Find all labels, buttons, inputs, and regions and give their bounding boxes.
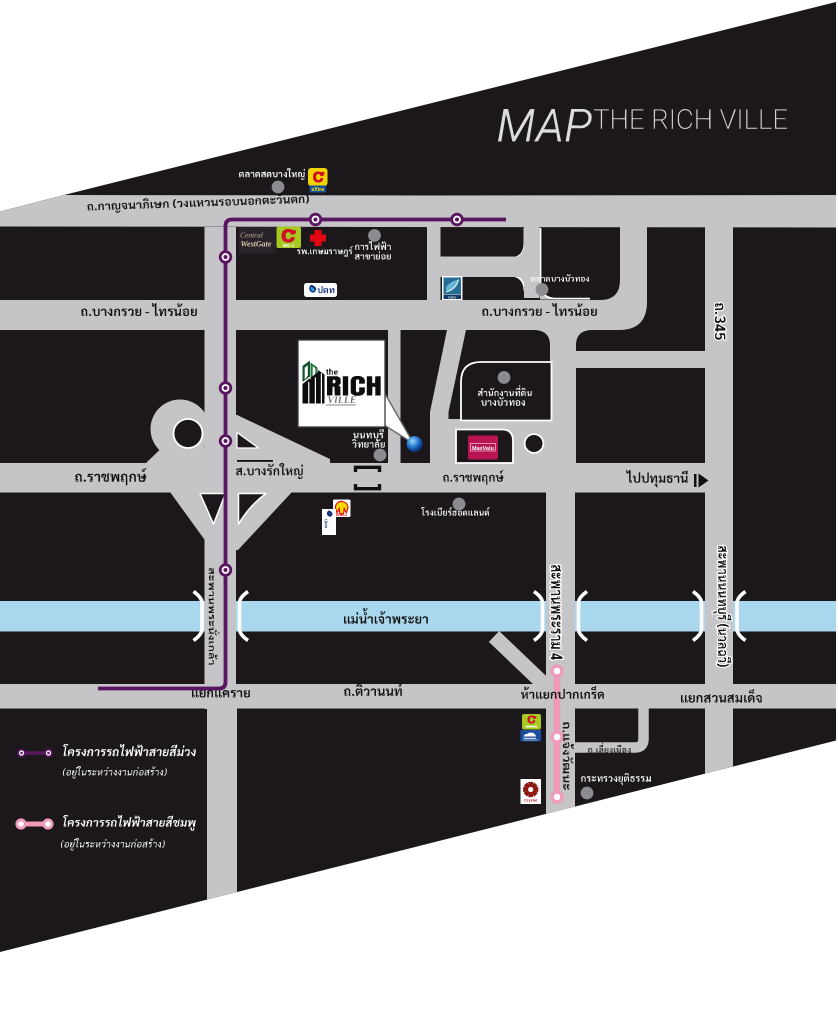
svg-text:eXtra: eXtra (312, 187, 325, 193)
svg-text:SHELL: SHELL (336, 513, 349, 517)
svg-text:Index: Index (448, 295, 457, 299)
svg-text:MaxValu: MaxValu (472, 446, 494, 452)
svg-text:WestGatе: WestGatе (241, 240, 272, 249)
svg-text:Cеntral: Cеntral (240, 231, 263, 240)
svg-text:BIG C: BIG C (283, 243, 295, 248)
svg-text:Crystal: Crystal (524, 799, 537, 803)
